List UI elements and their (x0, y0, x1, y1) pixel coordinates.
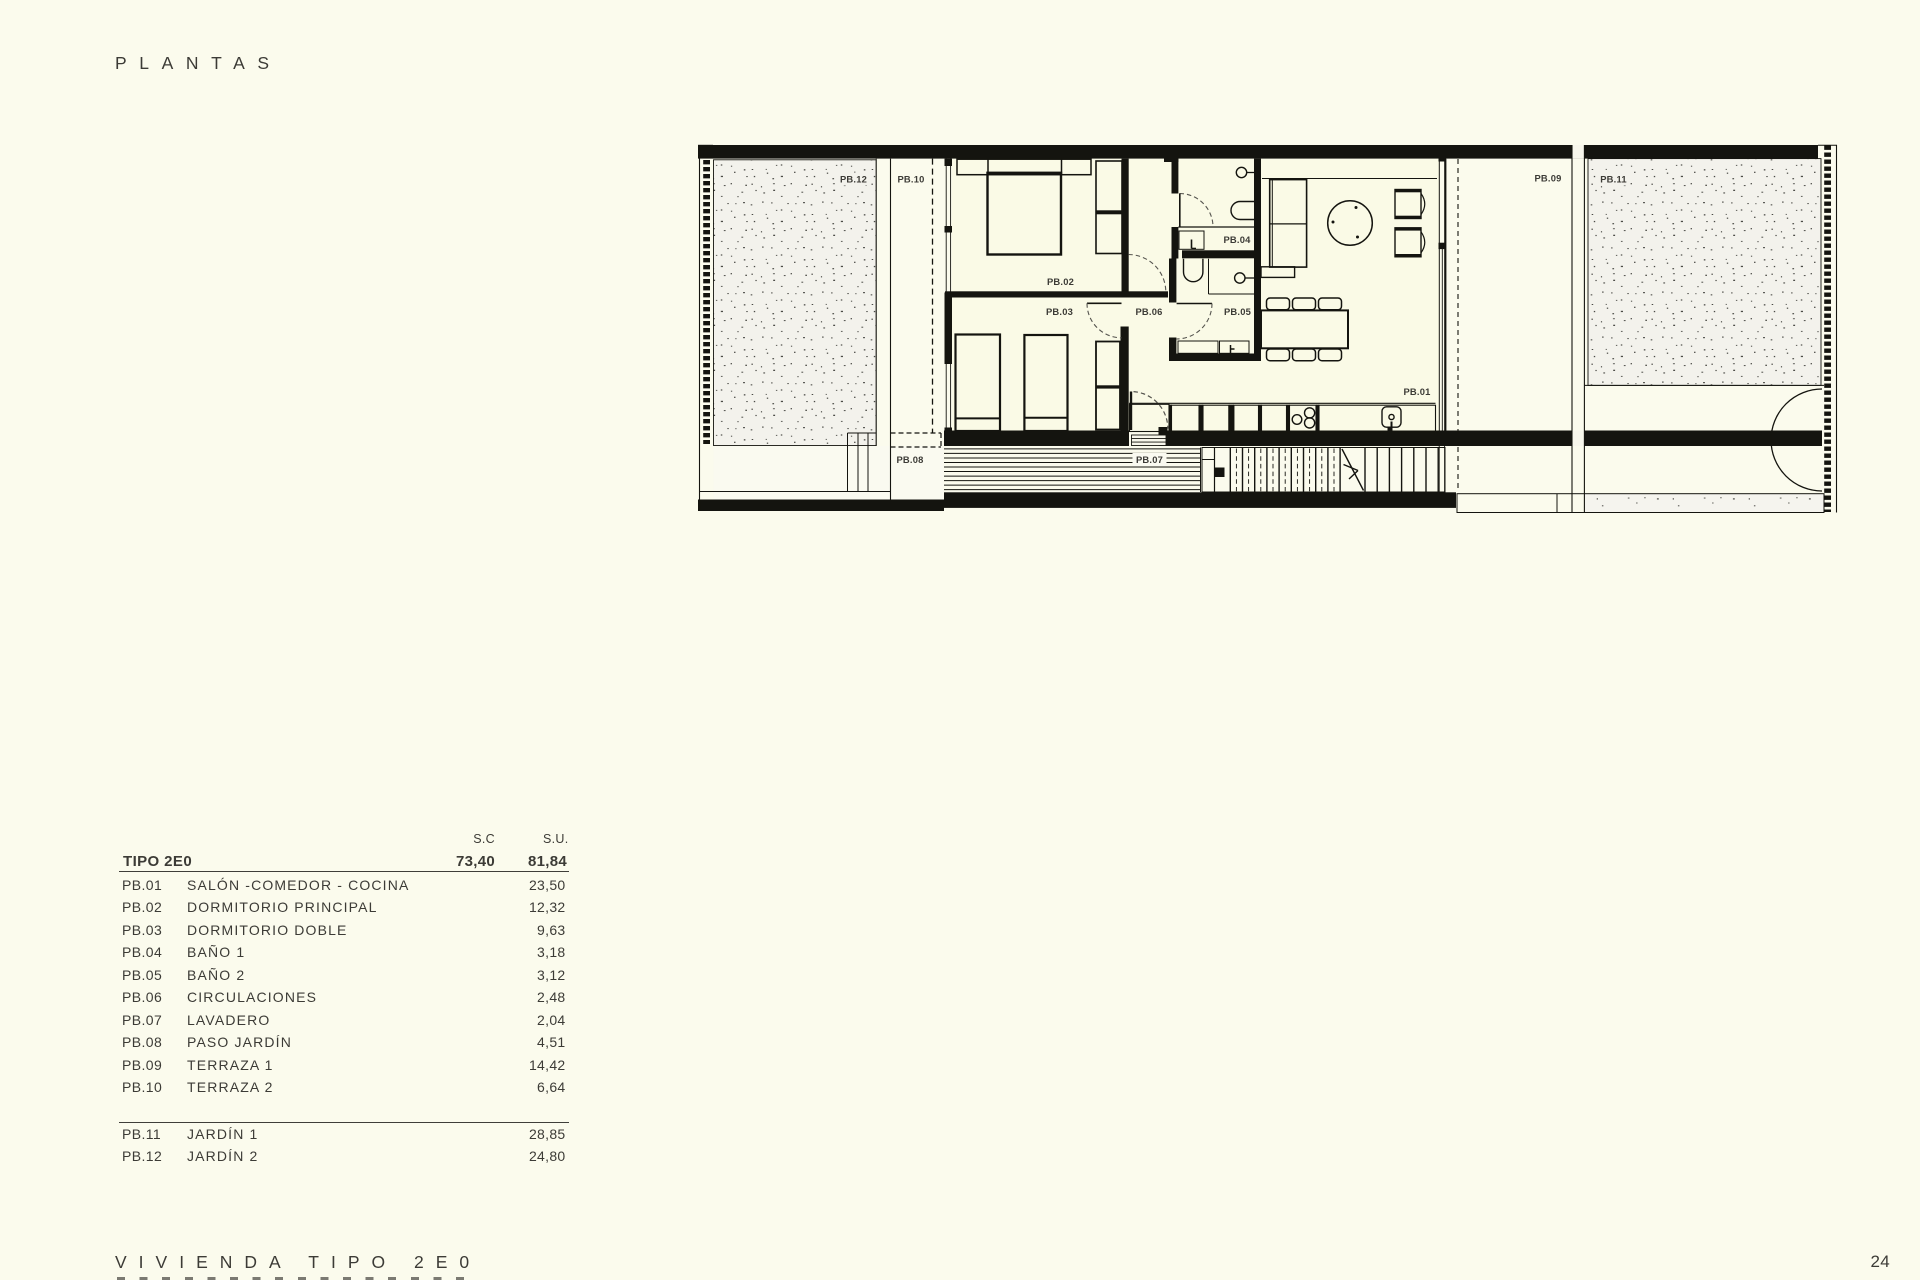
svg-text:PB.04: PB.04 (1223, 234, 1251, 245)
svg-text:PB.06: PB.06 (1135, 306, 1162, 317)
svg-text:PB.03: PB.03 (1046, 306, 1073, 317)
svg-text:PB.07: PB.07 (1136, 454, 1163, 465)
svg-text:PB.09: PB.09 (1534, 172, 1561, 183)
svg-text:PB.12: PB.12 (840, 173, 867, 184)
svg-text:PB.01: PB.01 (1403, 386, 1430, 397)
svg-text:PB.10: PB.10 (897, 173, 924, 184)
svg-text:PB.08: PB.08 (896, 454, 923, 465)
svg-text:PB.05: PB.05 (1224, 306, 1251, 317)
svg-text:PB.02: PB.02 (1047, 276, 1074, 287)
svg-text:PB.11: PB.11 (1600, 173, 1627, 184)
